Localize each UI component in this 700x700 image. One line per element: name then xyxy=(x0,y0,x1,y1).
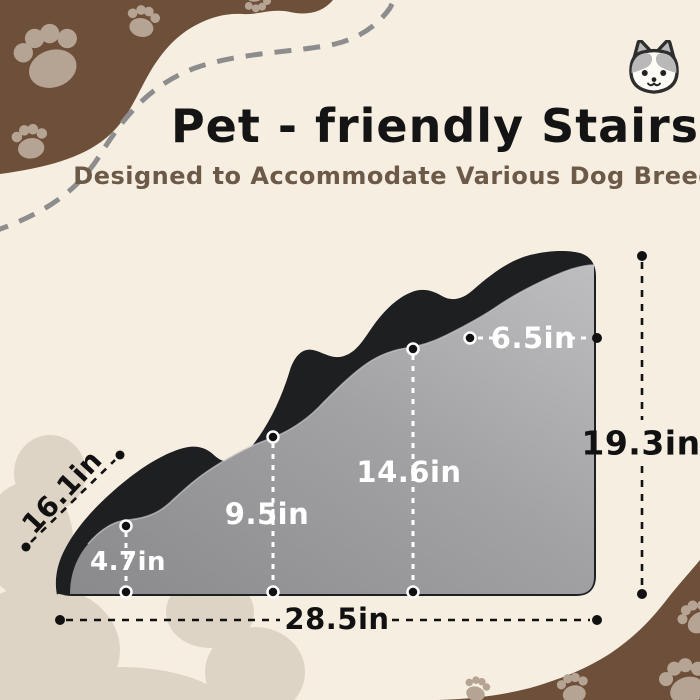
husky-face-icon xyxy=(620,40,688,106)
dimension-top-step-depth: 6.5in xyxy=(491,321,575,355)
dimension-third-step-height: 14.6in xyxy=(356,455,461,489)
dimension-second-step-height: 9.5in xyxy=(225,497,309,531)
dimension-first-step-height: 4.7in xyxy=(90,547,166,577)
stairs-product-image xyxy=(56,251,596,596)
product-infographic: Pet - friendly Stairs Designed to Accomm… xyxy=(0,0,700,700)
page-subtitle: Designed to Accommodate Various Dog Bree… xyxy=(73,162,700,190)
page-title: Pet - friendly Stairs xyxy=(171,99,699,153)
dimension-overall-height: 19.3in xyxy=(581,424,700,463)
dimension-overall-length: 28.5in xyxy=(284,602,389,636)
